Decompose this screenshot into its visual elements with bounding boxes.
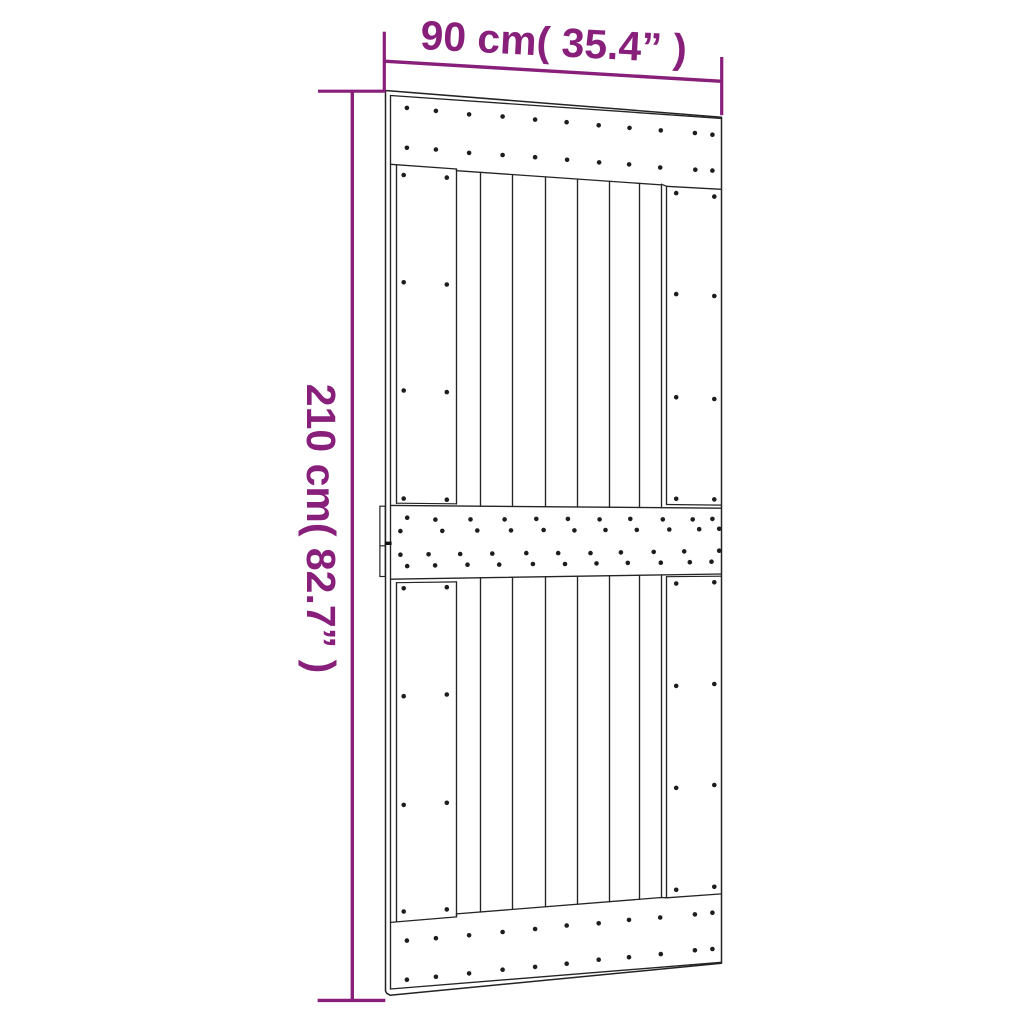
svg-text:210 cm( 82.7” ): 210 cm( 82.7” ) xyxy=(298,384,344,673)
